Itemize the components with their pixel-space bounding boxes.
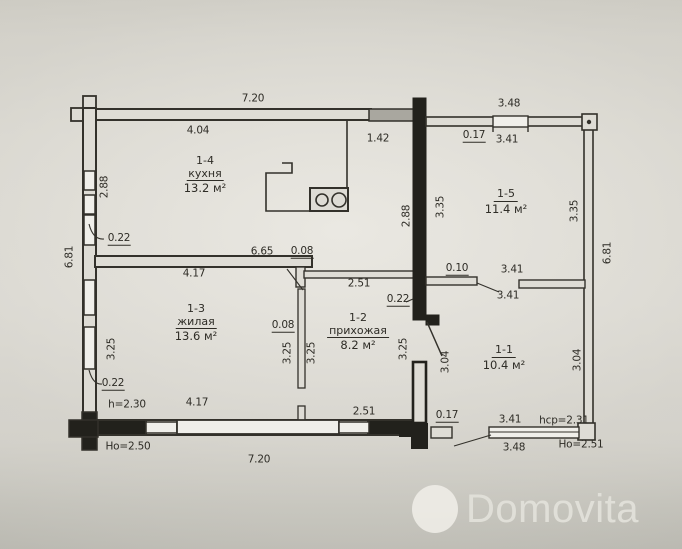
partition-wall bbox=[298, 289, 305, 388]
room-area: 8.2 м² bbox=[340, 338, 375, 352]
dim-label: 3.48 bbox=[498, 98, 521, 110]
dim-label: 3.41 bbox=[501, 264, 524, 276]
room-label: 1-4кухня13.2 м² bbox=[184, 155, 227, 196]
dim-label: 4.17 bbox=[183, 268, 206, 280]
windows-right-section bbox=[489, 116, 579, 438]
watermark: Domovita bbox=[412, 485, 639, 533]
dim-label: 0.17 bbox=[436, 410, 459, 423]
dim-label: 0.22 bbox=[102, 378, 125, 391]
dim-label: 7.20 bbox=[248, 454, 271, 466]
dim-label: 3.41 bbox=[499, 414, 522, 426]
dim-label: 3.25 bbox=[106, 338, 118, 361]
room-area: 11.4 м² bbox=[485, 202, 528, 216]
dim-label: 0.22 bbox=[108, 233, 131, 246]
dim-label: 4.04 bbox=[187, 125, 210, 137]
dim-label: 3.25 bbox=[398, 338, 410, 361]
dim-label: 0.17 bbox=[463, 130, 486, 143]
room-area: 13.6 м² bbox=[175, 329, 218, 343]
dim-label: 0.10 bbox=[446, 263, 469, 276]
annotation-leaders bbox=[89, 120, 591, 446]
room-number: 1-4 bbox=[193, 155, 217, 168]
dim-label: 2.88 bbox=[401, 205, 413, 228]
room-area: 13.2 м² bbox=[184, 181, 227, 195]
left-section-walls bbox=[69, 96, 415, 450]
room-number: 1-2 bbox=[346, 312, 370, 325]
dim-label: 1.42 bbox=[367, 133, 390, 145]
watermark-brand: Domovita bbox=[466, 487, 639, 532]
kitchen-fixtures bbox=[266, 121, 348, 211]
dim-label: 0.08 bbox=[272, 320, 295, 333]
room-area: 10.4 м² bbox=[483, 358, 526, 372]
dim-label: Ho=2.51 bbox=[558, 439, 603, 451]
dim-label: 2.51 bbox=[348, 278, 371, 290]
dim-label: 2.88 bbox=[99, 176, 111, 199]
partition-stub bbox=[298, 406, 305, 421]
room-number: 1-1 bbox=[492, 344, 516, 358]
dim-label: 4.17 bbox=[186, 397, 209, 409]
dim-label: 3.25 bbox=[282, 342, 294, 365]
corner-dot bbox=[587, 120, 591, 124]
dim-label: 3.41 bbox=[496, 134, 519, 146]
dim-label: 3.48 bbox=[503, 442, 526, 454]
dim-label: 3.04 bbox=[572, 349, 584, 372]
kitchen-counter bbox=[266, 163, 310, 211]
room-label: 1-511.4 м² bbox=[485, 188, 528, 216]
dim-label: 3.41 bbox=[497, 290, 520, 302]
dim-label: 3.04 bbox=[440, 351, 452, 374]
floor-plan-drawing bbox=[0, 0, 682, 549]
dim-label: 6.81 bbox=[64, 246, 76, 269]
room-name: кухня bbox=[186, 168, 223, 182]
dim-label: h=2.30 bbox=[108, 399, 146, 411]
right-section-walls bbox=[426, 114, 597, 440]
room-label: 1-110.4 м² bbox=[483, 344, 526, 372]
room-name: прихожая bbox=[327, 325, 389, 339]
room-name: жилая bbox=[175, 316, 216, 330]
floor-plan-photo: 7.203.484.041.420.173.410.226.650.084.17… bbox=[0, 0, 682, 549]
room-number: 1-5 bbox=[494, 188, 518, 202]
dim-label: 3.35 bbox=[569, 200, 581, 223]
room-label: 1-2прихожая8.2 м² bbox=[327, 312, 389, 353]
dim-label: Ho=2.50 bbox=[105, 441, 150, 453]
dim-label: 0.22 bbox=[387, 294, 410, 307]
dim-label: hcp=2.31 bbox=[539, 415, 589, 427]
dim-label: 3.25 bbox=[306, 342, 318, 365]
dim-label: 6.81 bbox=[602, 242, 614, 265]
dim-label: 2.51 bbox=[353, 406, 376, 418]
dim-label: 6.65 bbox=[251, 246, 274, 258]
dim-label: 0.08 bbox=[291, 246, 314, 259]
room-number: 1-3 bbox=[184, 303, 208, 316]
dim-label: 3.35 bbox=[435, 196, 447, 219]
dim-label: 7.20 bbox=[242, 93, 265, 105]
room-label: 1-3жилая13.6 м² bbox=[175, 303, 218, 344]
domovita-logo-icon bbox=[412, 485, 458, 533]
gray-wall-segment bbox=[369, 109, 414, 121]
